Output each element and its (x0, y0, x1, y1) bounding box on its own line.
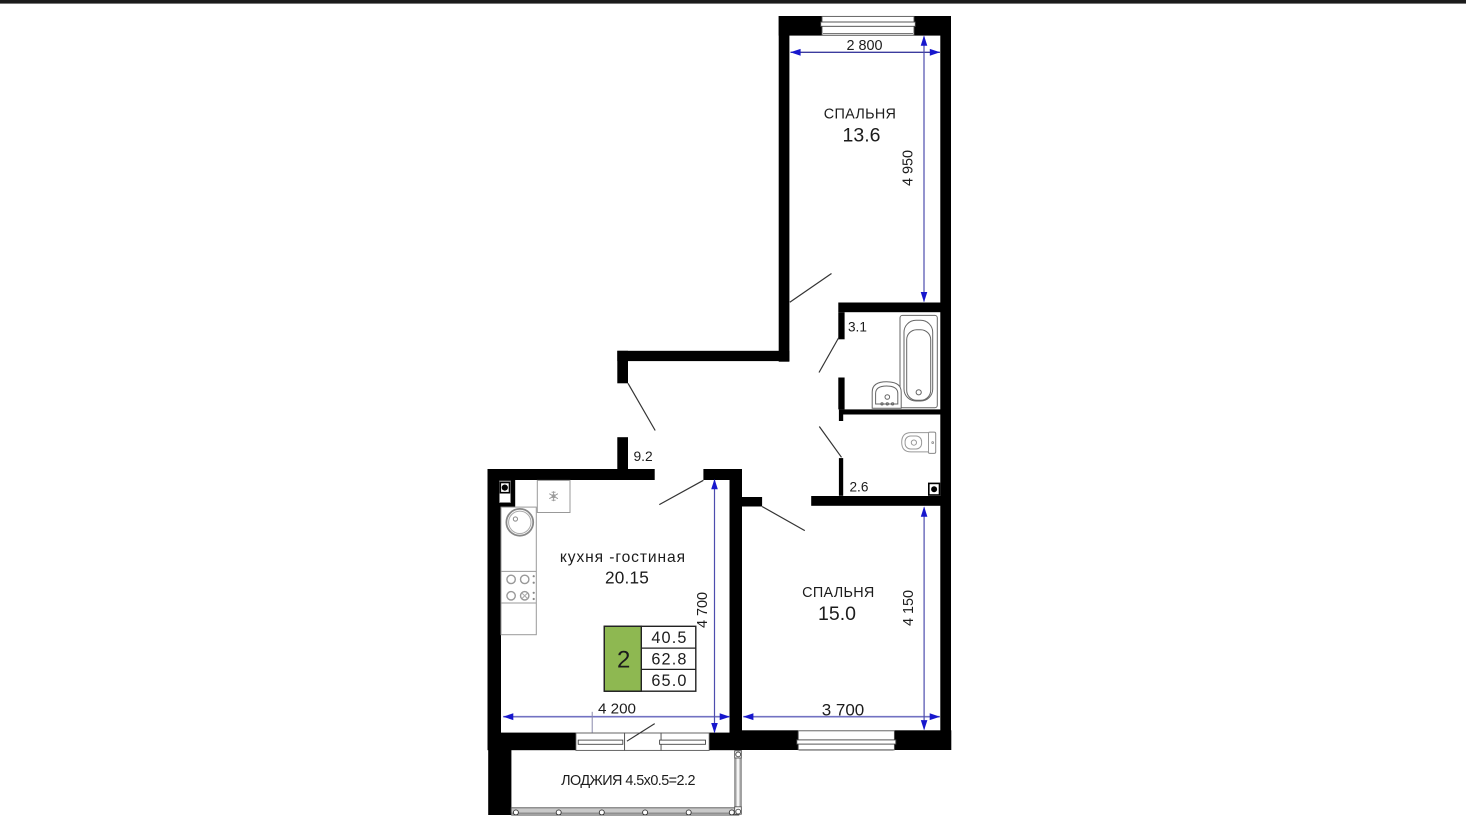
svg-text:9.2: 9.2 (634, 449, 653, 464)
svg-text:кухня -гостиная: кухня -гостиная (560, 549, 686, 566)
svg-text:20.15: 20.15 (605, 568, 649, 588)
svg-text:65.0: 65.0 (651, 672, 687, 690)
svg-text:62.8: 62.8 (651, 650, 687, 668)
svg-text:2: 2 (617, 646, 630, 673)
svg-text:2.6: 2.6 (850, 480, 869, 495)
svg-text:СПАЛЬНЯ: СПАЛЬНЯ (824, 106, 896, 122)
svg-text:СПАЛЬНЯ: СПАЛЬНЯ (802, 585, 874, 601)
svg-text:3.1: 3.1 (848, 319, 867, 334)
svg-text:4 950: 4 950 (901, 150, 917, 186)
svg-text:2 800: 2 800 (846, 38, 882, 54)
svg-text:40.5: 40.5 (651, 629, 687, 647)
svg-text:3 700: 3 700 (822, 700, 865, 719)
svg-text:ЛОДЖИЯ 4.5х0.5=2.2: ЛОДЖИЯ 4.5х0.5=2.2 (561, 773, 695, 789)
svg-text:4 150: 4 150 (901, 590, 917, 626)
svg-text:4 200: 4 200 (598, 700, 636, 717)
svg-text:13.6: 13.6 (843, 125, 881, 147)
svg-text:15.0: 15.0 (818, 603, 856, 625)
svg-text:4 700: 4 700 (695, 592, 711, 628)
